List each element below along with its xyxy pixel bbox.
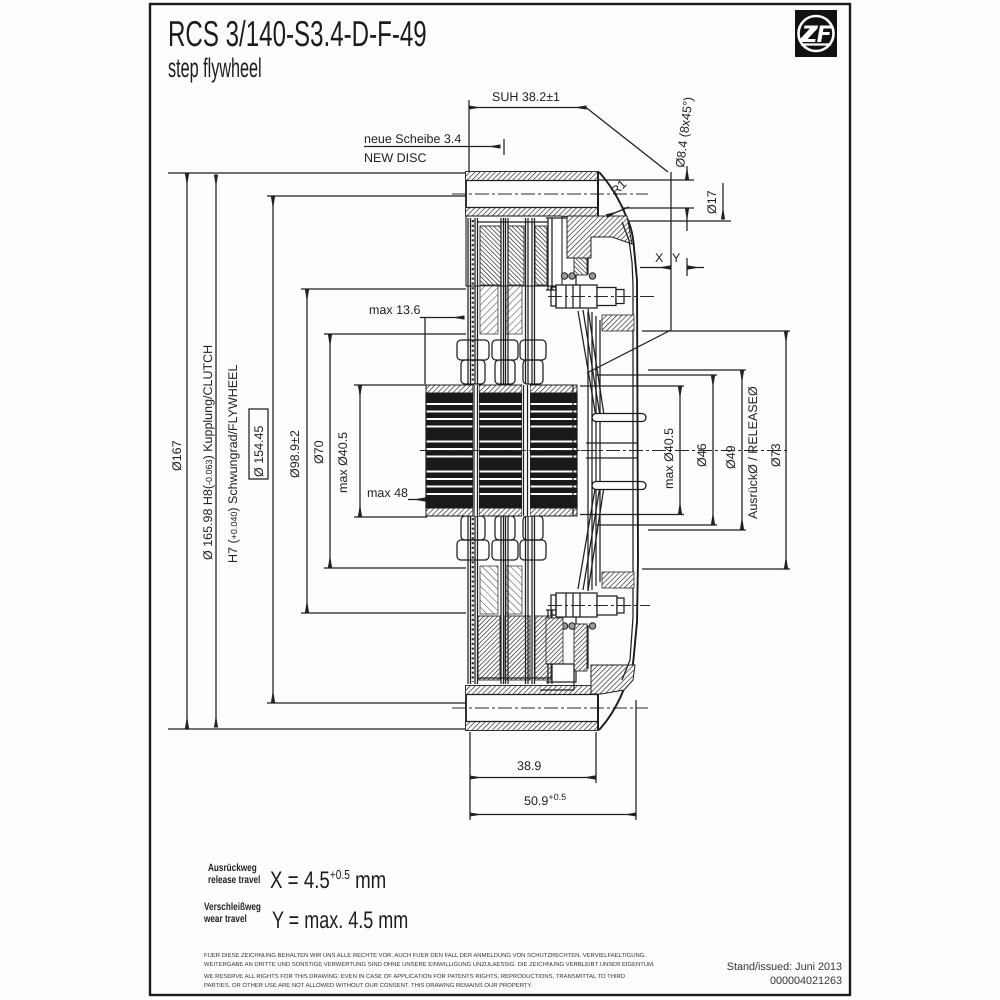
svg-text:H7 (+0.040) Schwungrad/FLYWHE: H7 (+0.040) Schwungrad/FLYWHEEL [226, 364, 240, 563]
svg-text:AusrückØ / RELEASEØ: AusrückØ / RELEASEØ [746, 386, 760, 519]
svg-text:Verschleißweg: Verschleißweg [204, 901, 261, 913]
svg-text:Ø46: Ø46 [695, 443, 709, 467]
svg-text:000004021263: 000004021263 [770, 975, 842, 987]
svg-text:50.9+0.5: 50.9+0.5 [524, 792, 566, 808]
svg-text:FUER DIESE ZEICHNUNG BEHALTEN: FUER DIESE ZEICHNUNG BEHALTEN WIR UNS AL… [204, 952, 646, 959]
svg-text:max 48: max 48 [367, 486, 408, 500]
svg-text:Ø 165.98 H8(-0.063) Kupplung/: Ø 165.98 H8(-0.063) Kupplung/CLUTCH [201, 345, 215, 560]
svg-text:SUH 38.2±1: SUH 38.2±1 [492, 90, 560, 104]
svg-text:38.9: 38.9 [517, 759, 541, 773]
svg-text:X: X [655, 251, 664, 265]
svg-text:Ø98.9±2: Ø98.9±2 [288, 430, 302, 478]
svg-text:WE RESERVE ALL RIGHTS FOR THIS: WE RESERVE ALL RIGHTS FOR THIS DRAWING: … [204, 973, 625, 980]
svg-text:Y: Y [672, 251, 681, 265]
svg-text:neue Scheibe 3.4: neue Scheibe 3.4 [364, 132, 461, 146]
svg-text:Ø8.4 (8x45°): Ø8.4 (8x45°) [673, 96, 696, 168]
svg-text:WEITERGABE AN DRITTE UND SONST: WEITERGABE AN DRITTE UND SONSTIGE VERWER… [204, 961, 655, 968]
svg-text:max 13.6: max 13.6 [369, 303, 420, 317]
svg-text:Ø70: Ø70 [312, 440, 326, 464]
svg-text:max Ø40.5: max Ø40.5 [662, 428, 676, 489]
svg-text:max Ø40.5: max Ø40.5 [336, 432, 350, 493]
svg-text:Ø49: Ø49 [724, 445, 738, 469]
svg-text:RCS 3/140-S3.4-D-F-49: RCS 3/140-S3.4-D-F-49 [168, 13, 427, 54]
svg-text:Y = max. 4.5 mm: Y = max. 4.5 mm [272, 907, 408, 934]
svg-text:Ausrückweg: Ausrückweg [208, 862, 257, 874]
svg-text:Ø17: Ø17 [705, 190, 719, 214]
svg-text:NEW DISC: NEW DISC [364, 151, 427, 165]
svg-text:PARTIES, OR OTHER USE ARE NOT: PARTIES, OR OTHER USE ARE NOT ALLOWED WI… [204, 982, 533, 989]
svg-text:release travel: release travel [208, 874, 260, 886]
svg-text:X = 4.5+0.5 mm: X = 4.5+0.5 mm [270, 867, 386, 894]
svg-text:Ø 154.45: Ø 154.45 [252, 426, 266, 477]
svg-text:Ø167: Ø167 [170, 440, 184, 471]
svg-text:Stand/issued: Juni 2013: Stand/issued: Juni 2013 [727, 961, 842, 973]
svg-text:step flywheel: step flywheel [168, 53, 262, 83]
svg-text:Ø73: Ø73 [769, 443, 783, 467]
svg-text:wear travel: wear travel [203, 913, 247, 925]
